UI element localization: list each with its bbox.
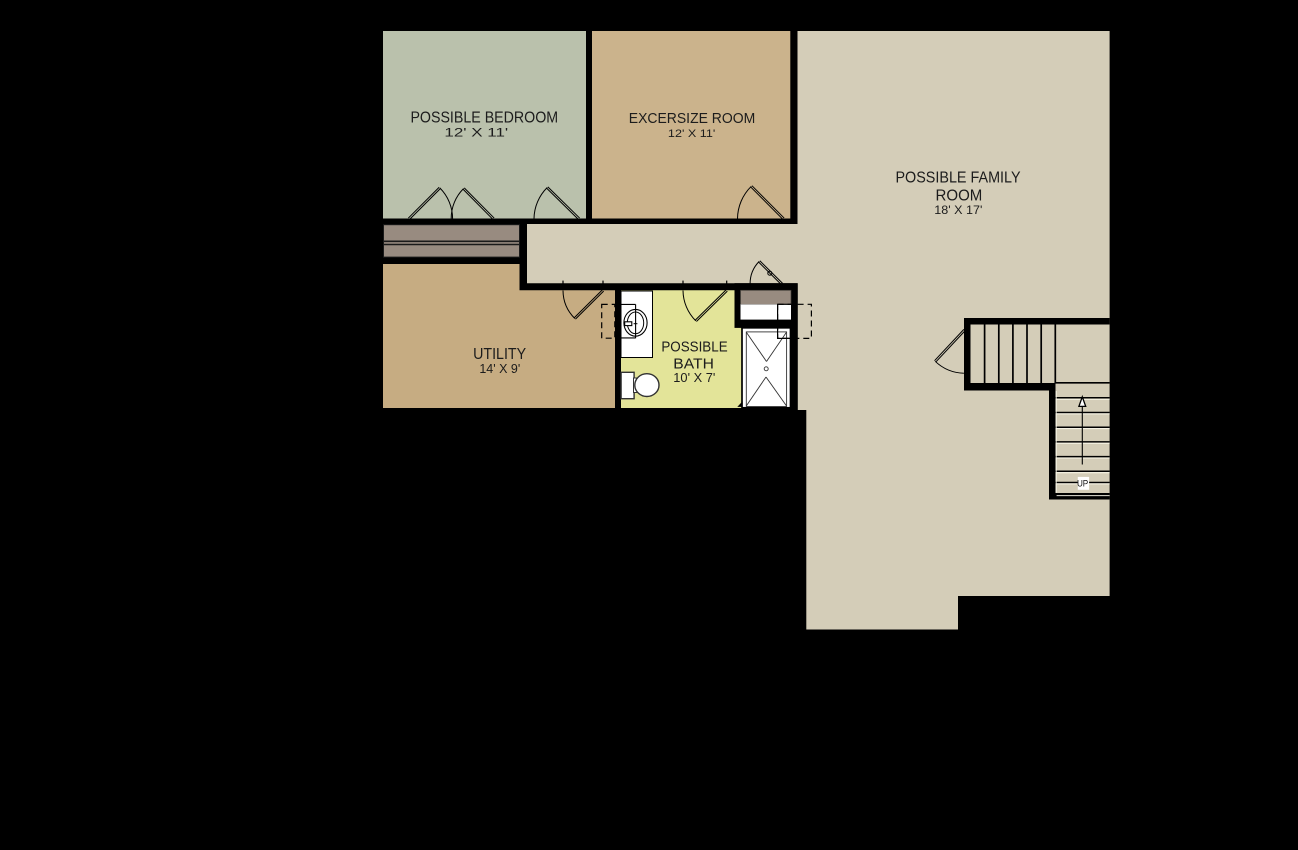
svg-text:10' X 7': 10' X 7'	[673, 370, 715, 385]
svg-text:POSSIBLE: POSSIBLE	[661, 340, 728, 356]
svg-text:12' X 11': 12' X 11'	[444, 128, 508, 140]
svg-text:EXCERSIZE ROOM: EXCERSIZE ROOM	[629, 110, 756, 127]
svg-text:POSSIBLE FAMILY: POSSIBLE FAMILY	[895, 169, 1020, 186]
svg-text:POSSIBLE BEDROOM: POSSIBLE BEDROOM	[410, 110, 558, 127]
svg-text:UP: UP	[1077, 478, 1088, 488]
svg-text:ROOM: ROOM	[936, 187, 983, 204]
svg-text:14' X 9': 14' X 9'	[479, 361, 520, 376]
svg-text:12' X 11': 12' X 11'	[668, 128, 715, 140]
svg-text:18' X 17': 18' X 17'	[934, 203, 982, 217]
